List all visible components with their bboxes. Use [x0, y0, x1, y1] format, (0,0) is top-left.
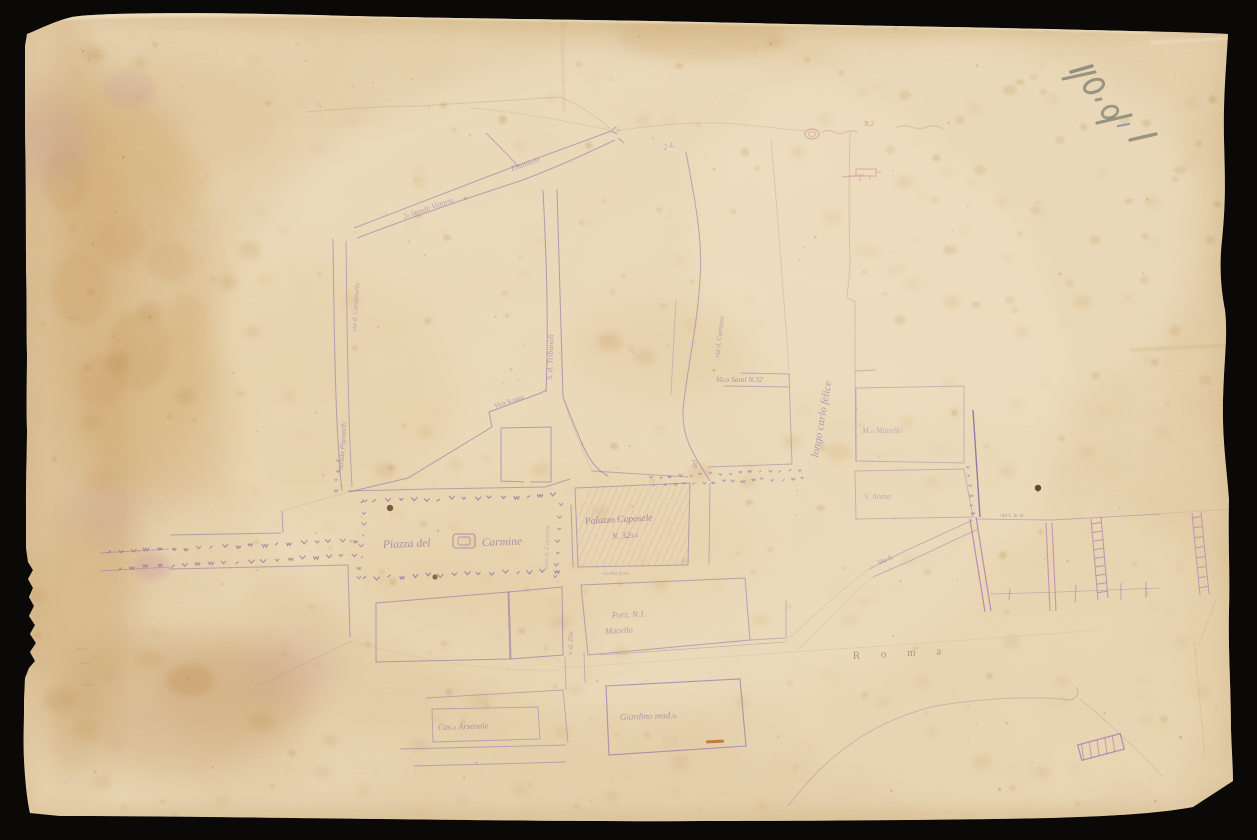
- svg-text:Giardino mad.le: Giardino mad.le: [620, 710, 678, 722]
- svg-text:vico d. Carmine: vico d. Carmine: [542, 525, 552, 570]
- svg-text:Carmine: Carmine: [482, 536, 523, 549]
- svg-text:v. d. Zite: v. d. Zite: [566, 631, 575, 655]
- svg-text:N: N: [316, 101, 322, 110]
- svg-text:Macello: Macello: [604, 625, 633, 636]
- svg-text:del: del: [690, 459, 699, 468]
- svg-text:via Bel fiore: via Bel fiore: [602, 570, 630, 577]
- svg-text:N.2: N.2: [863, 120, 874, 128]
- svg-text:Porz. N.1: Porz. N.1: [611, 608, 645, 620]
- svg-text:Piazza del: Piazza del: [382, 537, 431, 551]
- svg-text:M.o Macello: M.o Macello: [861, 426, 902, 435]
- svg-text:Cas.a Arsenale: Cas.a Arsenale: [438, 720, 489, 732]
- svg-text:Vico Santi N.32: Vico Santi N.32: [716, 375, 763, 384]
- svg-text:S. d. Tribunali: S. d. Tribunali: [545, 334, 556, 380]
- svg-text:V. Arena: V. Arena: [864, 492, 891, 501]
- svg-text:via t. n. m.: via t. n. m.: [1000, 513, 1025, 519]
